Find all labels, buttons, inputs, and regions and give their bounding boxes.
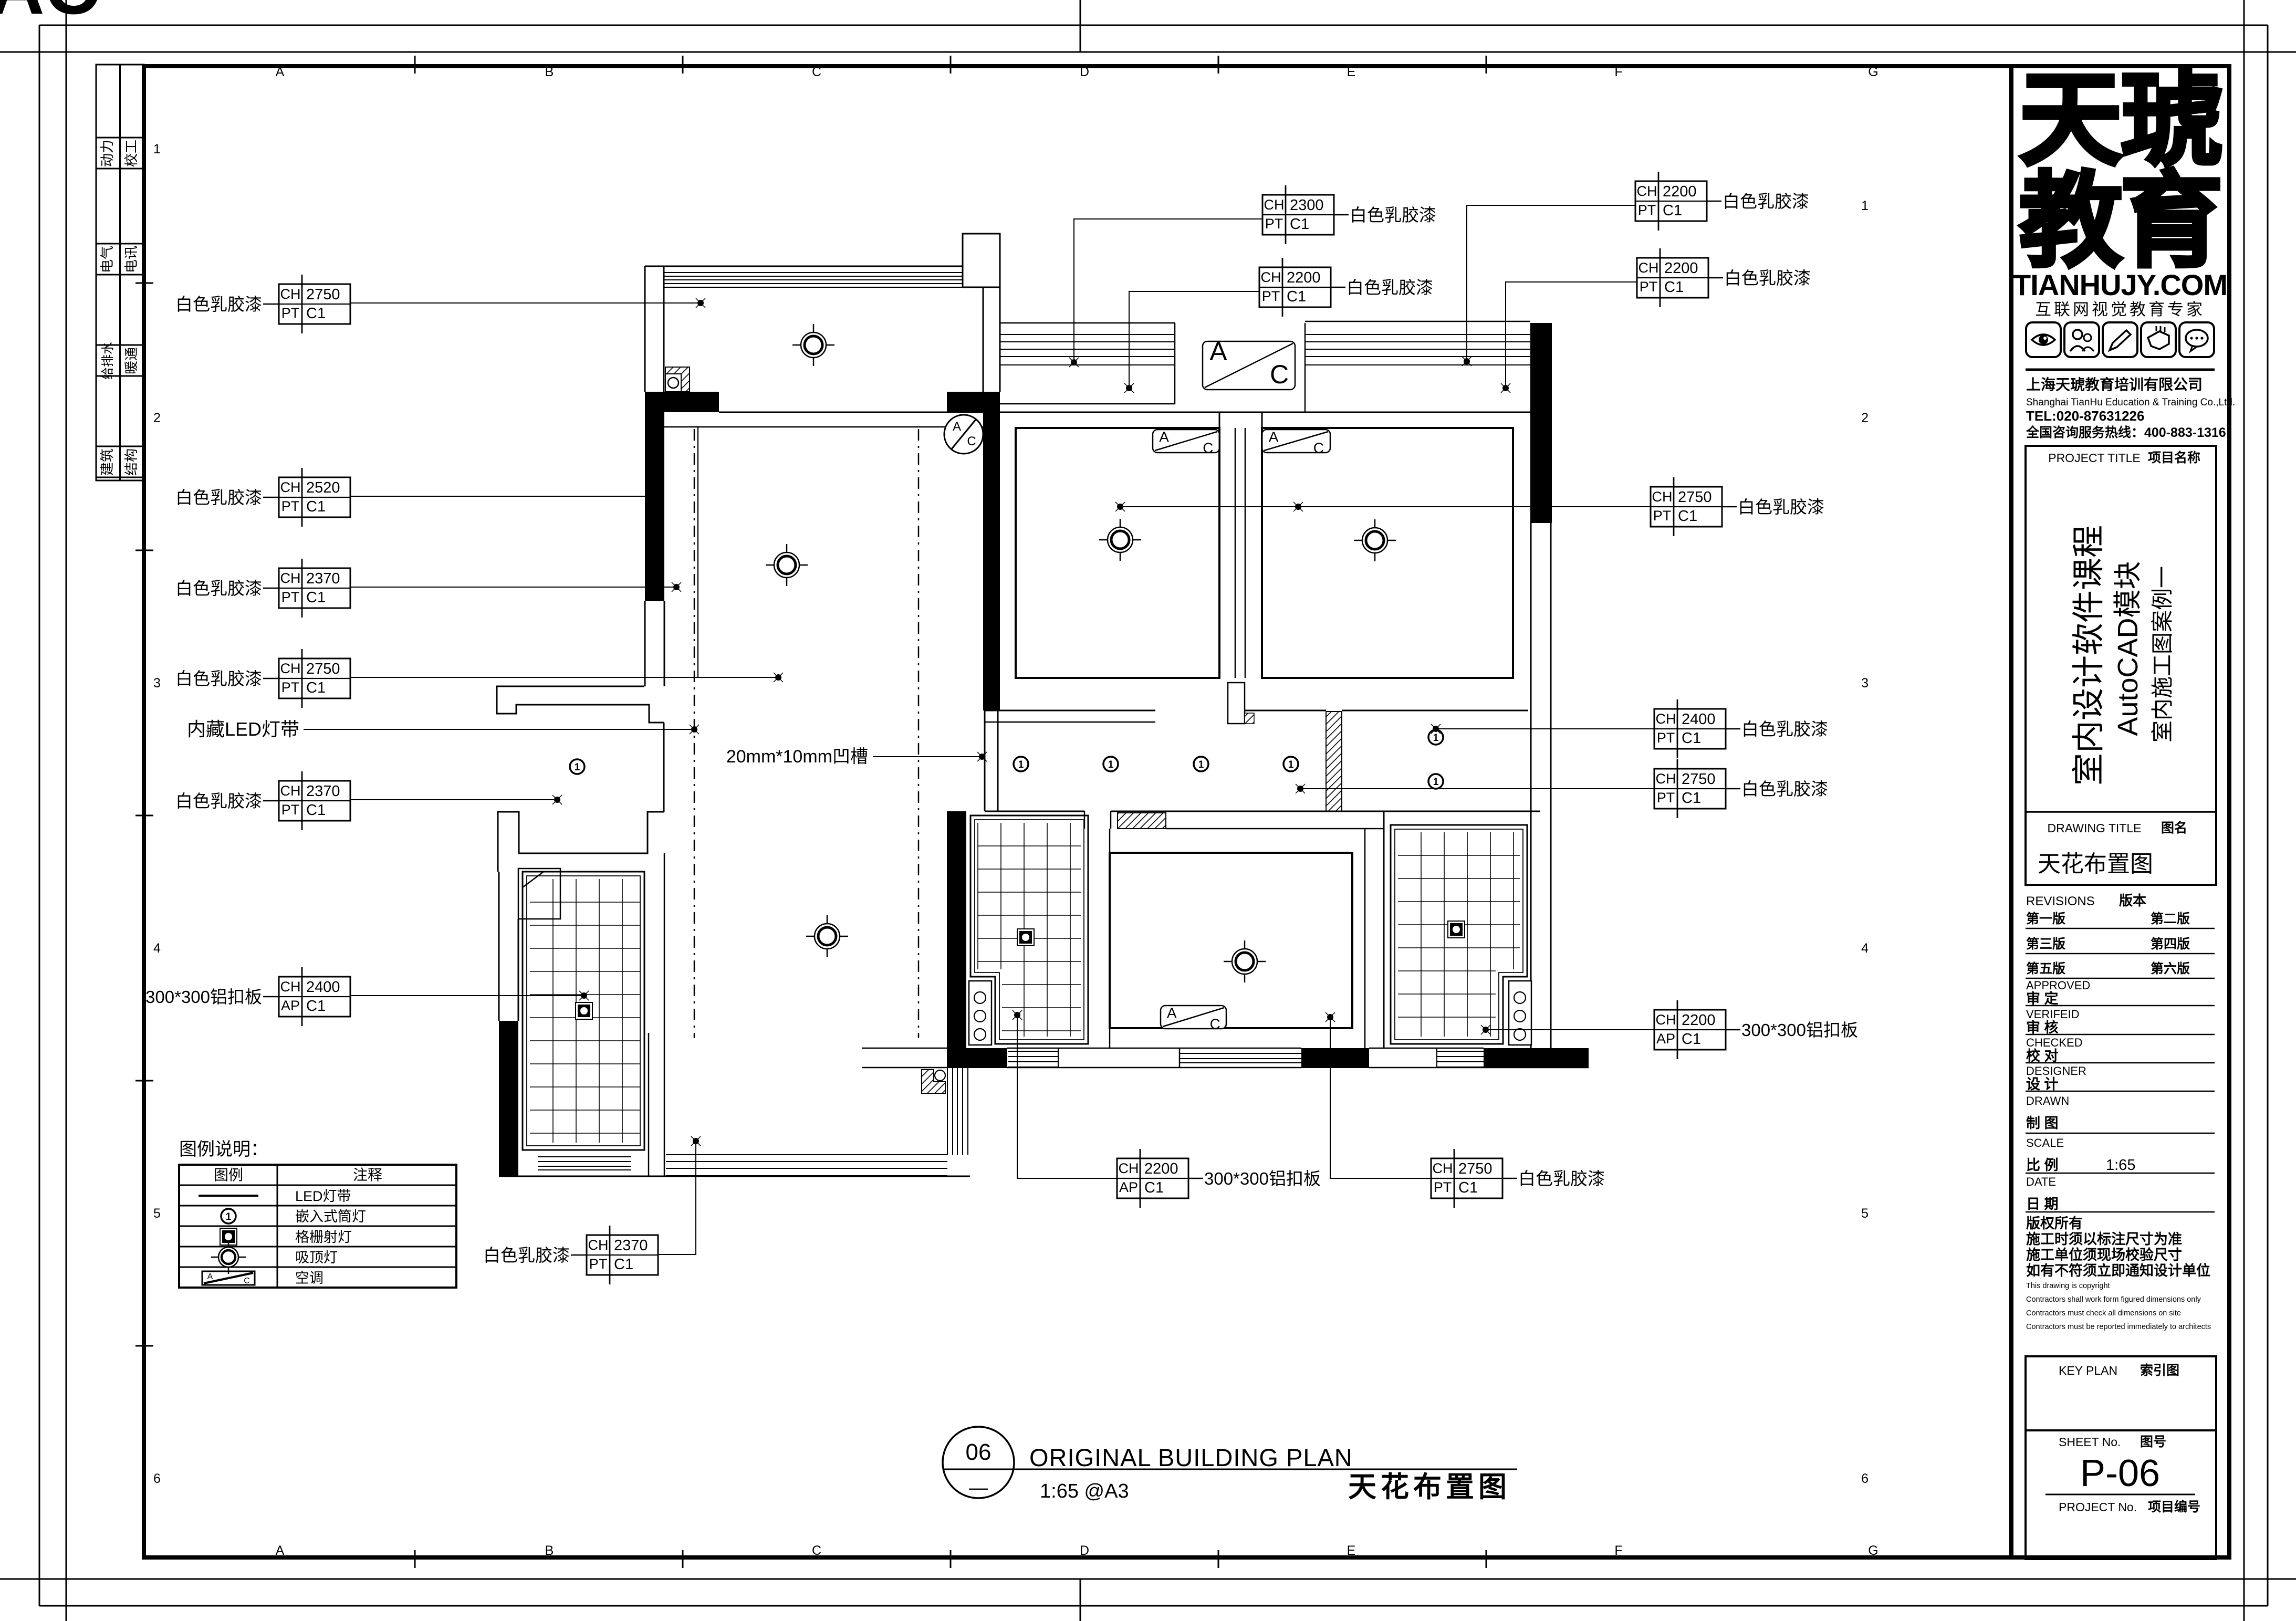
svg-text:5: 5 [153, 1206, 161, 1221]
svg-text:白色乳胶漆: 白色乳胶漆 [1347, 278, 1433, 297]
svg-text:PT: PT [1265, 216, 1283, 232]
svg-text:1: 1 [226, 1211, 232, 1222]
svg-text:AP: AP [1119, 1179, 1138, 1195]
svg-text:B: B [545, 1543, 554, 1558]
svg-text:项目名称: 项目名称 [2148, 450, 2200, 465]
svg-text:白色乳胶漆: 白色乳胶漆 [175, 579, 262, 598]
svg-text:1: 1 [1433, 733, 1439, 744]
svg-text:C1: C1 [1682, 790, 1701, 807]
svg-text:1: 1 [153, 142, 161, 156]
svg-text:APPROVED: APPROVED [2026, 979, 2090, 992]
svg-text:B: B [545, 65, 554, 79]
svg-text:E: E [1347, 65, 1356, 79]
svg-text:白色乳胶漆: 白色乳胶漆 [1723, 192, 1809, 211]
svg-text:白色乳胶漆: 白色乳胶漆 [175, 295, 262, 314]
svg-text:给排水: 给排水 [101, 342, 115, 380]
svg-text:2: 2 [1861, 411, 1869, 425]
svg-text:1: 1 [1433, 777, 1439, 788]
svg-text:PT: PT [1653, 508, 1672, 524]
svg-text:上海天琥教育培训有限公司: 上海天琥教育培训有限公司 [2026, 376, 2203, 393]
svg-text:室内设计软件课程: 室内设计软件课程 [2071, 525, 2107, 786]
svg-text:PT: PT [281, 498, 300, 514]
svg-text:C1: C1 [1458, 1179, 1478, 1196]
svg-text:PT: PT [589, 1256, 608, 1272]
svg-text:C1: C1 [614, 1256, 633, 1273]
svg-text:C: C [1203, 440, 1213, 456]
svg-text:20mm*10mm凹槽: 20mm*10mm凹槽 [726, 747, 868, 767]
svg-text:第二版: 第二版 [2151, 911, 2190, 926]
svg-text:审 核: 审 核 [2026, 1019, 2059, 1036]
svg-text:2750: 2750 [1458, 1160, 1493, 1177]
svg-text:F: F [1614, 65, 1622, 79]
svg-text:图例说明：: 图例说明： [179, 1139, 268, 1159]
svg-text:1: 1 [1861, 198, 1869, 213]
svg-text:PROJECT No.: PROJECT No. [2059, 1500, 2137, 1514]
svg-text:2300: 2300 [1290, 197, 1324, 214]
svg-text:This drawing is copyright: This drawing is copyright [2026, 1282, 2110, 1290]
svg-text:2750: 2750 [306, 661, 340, 677]
svg-text:2200: 2200 [1287, 269, 1321, 286]
svg-text:CH: CH [1656, 1012, 1676, 1028]
svg-text:AutoCAD模块: AutoCAD模块 [2112, 561, 2144, 736]
svg-text:2: 2 [153, 411, 161, 425]
svg-text:C1: C1 [1287, 288, 1306, 305]
svg-text:2750: 2750 [1682, 771, 1716, 788]
svg-text:校工: 校工 [123, 140, 139, 167]
svg-text:图例: 图例 [214, 1167, 243, 1183]
svg-text:审 定: 审 定 [2026, 990, 2059, 1007]
svg-text:TEL:020-87631226: TEL:020-87631226 [2026, 408, 2144, 424]
svg-text:教育: 教育 [2019, 164, 2221, 279]
svg-text:C1: C1 [306, 498, 326, 515]
svg-text:A: A [1269, 428, 1279, 445]
svg-text:第四版: 第四版 [2151, 936, 2190, 951]
svg-text:白色乳胶漆: 白色乳胶漆 [175, 488, 262, 507]
svg-text:白色乳胶漆: 白色乳胶漆 [1350, 205, 1436, 225]
svg-text:P-06: P-06 [2080, 1452, 2160, 1494]
svg-text:2200: 2200 [1144, 1160, 1178, 1177]
svg-text:暖通: 暖通 [123, 347, 139, 374]
svg-text:PROJECT TITLE: PROJECT TITLE [2048, 451, 2141, 465]
svg-text:1:65: 1:65 [2106, 1157, 2135, 1174]
svg-text:日 期: 日 期 [2026, 1196, 2059, 1212]
svg-text:300*300铝扣板: 300*300铝扣板 [145, 987, 262, 1007]
svg-text:白色乳胶漆: 白色乳胶漆 [1518, 1169, 1605, 1188]
svg-text:SCALE: SCALE [2026, 1136, 2064, 1149]
svg-text:A: A [1167, 1005, 1177, 1021]
svg-text:PT: PT [281, 589, 300, 605]
svg-text:C1: C1 [1663, 202, 1682, 219]
svg-text:第三版: 第三版 [2026, 936, 2065, 951]
svg-text:电讯: 电讯 [123, 246, 139, 273]
svg-text:天花布置图: 天花布置图 [1348, 1471, 1511, 1503]
svg-text:CH: CH [1656, 711, 1676, 727]
svg-text:白色乳胶漆: 白色乳胶漆 [1724, 268, 1811, 288]
svg-text:CH: CH [1119, 1160, 1139, 1176]
svg-text:G: G [1868, 65, 1878, 79]
svg-text:CH: CH [1637, 183, 1657, 199]
svg-text:DRAWING TITLE: DRAWING TITLE [2048, 821, 2142, 835]
svg-text:白色乳胶漆: 白色乳胶漆 [483, 1246, 570, 1265]
svg-text:CH: CH [280, 661, 301, 676]
svg-text:2370: 2370 [614, 1237, 648, 1254]
svg-text:C: C [812, 65, 821, 79]
svg-text:内藏LED灯带: 内藏LED灯带 [187, 718, 299, 740]
svg-text:白色乳胶漆: 白色乳胶漆 [1738, 497, 1824, 517]
svg-text:2370: 2370 [306, 783, 340, 800]
svg-text:白色乳胶漆: 白色乳胶漆 [175, 791, 262, 811]
svg-text:TIANHUJY.COM: TIANHUJY.COM [2013, 268, 2227, 301]
svg-text:1: 1 [575, 762, 580, 773]
svg-text:A: A [207, 1272, 213, 1281]
svg-text:Contractors must be reported i: Contractors must be reported immediately… [2026, 1323, 2211, 1331]
svg-text:C1: C1 [1682, 1031, 1701, 1048]
svg-text:第六版: 第六版 [2151, 961, 2190, 976]
svg-text:PT: PT [281, 802, 300, 818]
svg-text:PT: PT [1434, 1179, 1452, 1195]
svg-text:Shanghai TianHu Education & Tr: Shanghai TianHu Education & Training Co.… [2026, 397, 2235, 408]
svg-text:天琥: 天琥 [2019, 62, 2221, 177]
svg-text:C: C [1210, 1016, 1220, 1032]
svg-text:F: F [1614, 1543, 1622, 1558]
svg-text:A: A [276, 65, 285, 79]
svg-text:E: E [1347, 1543, 1356, 1558]
svg-text:2400: 2400 [306, 979, 340, 996]
svg-text:施工单位须现场校验尺寸: 施工单位须现场校验尺寸 [2026, 1247, 2182, 1263]
svg-text:CH: CH [280, 783, 301, 799]
svg-text:如有不符须立即通知设计单位: 如有不符须立即通知设计单位 [2026, 1262, 2210, 1279]
svg-text:SHEET No.: SHEET No. [2059, 1435, 2121, 1449]
svg-text:比 例: 比 例 [2026, 1157, 2059, 1173]
svg-text:PT: PT [281, 679, 300, 695]
svg-text:C: C [812, 1543, 821, 1558]
svg-text:KEY PLAN: KEY PLAN [2059, 1364, 2117, 1377]
svg-text:—: — [969, 1477, 988, 1498]
svg-text:设 计: 设 计 [2026, 1076, 2059, 1092]
svg-text:第五版: 第五版 [2026, 961, 2065, 976]
svg-text:4: 4 [1861, 941, 1869, 956]
svg-text:CH: CH [280, 479, 301, 495]
svg-text:C1: C1 [1664, 279, 1684, 296]
svg-text:白色乳胶漆: 白色乳胶漆 [1741, 779, 1828, 799]
svg-text:Contractors must check all dim: Contractors must check all dimensions on… [2026, 1309, 2181, 1317]
svg-text:C1: C1 [1144, 1179, 1164, 1196]
svg-text:1: 1 [1018, 759, 1024, 770]
svg-text:Contractors shall work form fi: Contractors shall work form figured dime… [2026, 1295, 2201, 1304]
svg-text:版本: 版本 [2118, 893, 2146, 908]
svg-text:C1: C1 [1290, 216, 1309, 233]
svg-text:AC: AC [0, 0, 99, 30]
svg-text:DESIGNER: DESIGNER [2026, 1064, 2086, 1078]
svg-text:2520: 2520 [306, 479, 340, 496]
svg-text:项目编号: 项目编号 [2148, 1499, 2200, 1514]
svg-text:C1: C1 [1678, 508, 1697, 525]
svg-text:CH: CH [1638, 260, 1659, 276]
svg-text:PT: PT [1657, 790, 1675, 806]
svg-text:300*300铝扣板: 300*300铝扣板 [1741, 1020, 1858, 1040]
svg-text:天花布置图: 天花布置图 [2038, 851, 2153, 877]
svg-text:PT: PT [1262, 288, 1280, 304]
svg-text:图名: 图名 [2161, 820, 2187, 835]
svg-text:6: 6 [153, 1471, 161, 1486]
svg-text:DATE: DATE [2026, 1175, 2056, 1188]
svg-text:2750: 2750 [1678, 489, 1712, 506]
svg-text:1: 1 [1108, 759, 1114, 770]
svg-text:A: A [1159, 428, 1169, 445]
svg-text:施工时须以标注尺寸为准: 施工时须以标注尺寸为准 [2026, 1231, 2182, 1247]
svg-text:AP: AP [281, 998, 300, 1013]
svg-text:索引图: 索引图 [2140, 1363, 2179, 1378]
svg-text:G: G [1868, 1543, 1878, 1558]
svg-text:DRAWN: DRAWN [2026, 1094, 2069, 1107]
svg-text:3: 3 [1861, 676, 1869, 691]
svg-text:C: C [244, 1277, 250, 1285]
svg-text:A: A [953, 420, 961, 434]
svg-text:第一版: 第一版 [2026, 911, 2065, 926]
svg-text:2200: 2200 [1682, 1012, 1716, 1029]
svg-text:1: 1 [1198, 759, 1204, 770]
svg-text:动力: 动力 [99, 140, 115, 167]
svg-text:LED灯带: LED灯带 [295, 1188, 351, 1204]
svg-text:2200: 2200 [1663, 183, 1697, 200]
svg-text:PT: PT [281, 305, 300, 321]
svg-text:PT: PT [1638, 202, 1656, 218]
svg-text:2370: 2370 [306, 570, 340, 587]
svg-text:A: A [1209, 337, 1227, 366]
svg-text:REVISIONS: REVISIONS [2026, 894, 2095, 908]
svg-text:D: D [1080, 65, 1089, 79]
svg-text:3: 3 [153, 676, 161, 691]
svg-text:建筑: 建筑 [99, 448, 115, 476]
svg-text:室内施工图案例一: 室内施工图案例一 [2150, 566, 2175, 742]
svg-text:电气: 电气 [99, 246, 115, 273]
svg-text:CH: CH [588, 1237, 609, 1253]
svg-text:C: C [1313, 440, 1324, 456]
svg-text:2400: 2400 [1682, 711, 1716, 728]
svg-text:互联网视觉教育专家: 互联网视觉教育专家 [2035, 300, 2205, 319]
svg-text:C1: C1 [306, 802, 326, 819]
svg-text:C1: C1 [306, 589, 326, 606]
svg-text:4: 4 [153, 941, 161, 956]
svg-text:2750: 2750 [306, 286, 340, 303]
svg-text:格栅射灯: 格栅射灯 [295, 1229, 352, 1245]
svg-text:D: D [1080, 1543, 1089, 1558]
svg-text:06: 06 [966, 1439, 992, 1465]
svg-text:结构: 结构 [123, 448, 139, 476]
svg-text:5: 5 [1861, 1206, 1869, 1221]
svg-text:制 图: 制 图 [2026, 1115, 2059, 1131]
svg-text:白色乳胶漆: 白色乳胶漆 [175, 669, 262, 688]
svg-text:嵌入式筒灯: 嵌入式筒灯 [295, 1209, 366, 1225]
svg-text:C: C [1270, 360, 1289, 389]
svg-text:ORIGINAL BUILDING PLAN: ORIGINAL BUILDING PLAN [1029, 1444, 1353, 1471]
svg-text:C1: C1 [1682, 730, 1701, 747]
svg-text:1:65 @A3: 1:65 @A3 [1040, 1480, 1129, 1502]
svg-text:图号: 图号 [2140, 1435, 2166, 1449]
svg-text:6: 6 [1861, 1471, 1869, 1486]
svg-text:C1: C1 [306, 679, 326, 696]
svg-text:300*300铝扣板: 300*300铝扣板 [1204, 1169, 1321, 1188]
svg-text:2200: 2200 [1664, 260, 1698, 277]
svg-text:CH: CH [280, 570, 301, 586]
svg-text:CH: CH [1656, 771, 1676, 787]
svg-text:CH: CH [280, 979, 301, 995]
svg-text:VERIFEID: VERIFEID [2026, 1008, 2079, 1021]
svg-text:校 对: 校 对 [2026, 1048, 2059, 1064]
svg-text:PT: PT [1657, 730, 1675, 746]
svg-text:吸顶灯: 吸顶灯 [295, 1250, 338, 1266]
svg-text:PT: PT [1640, 279, 1658, 295]
svg-text:CH: CH [1433, 1160, 1453, 1176]
svg-text:CH: CH [1264, 197, 1285, 213]
svg-text:1: 1 [1288, 759, 1294, 770]
svg-text:空调: 空调 [295, 1270, 323, 1286]
svg-text:C1: C1 [306, 305, 326, 322]
svg-text:版权所有: 版权所有 [2026, 1216, 2083, 1231]
svg-text:白色乳胶漆: 白色乳胶漆 [1741, 719, 1828, 739]
svg-text:CHECKED: CHECKED [2026, 1036, 2083, 1049]
svg-text:CH: CH [280, 286, 301, 302]
svg-text:CH: CH [1652, 489, 1673, 505]
svg-text:A: A [276, 1543, 285, 1558]
svg-text:CH: CH [1261, 269, 1281, 285]
svg-text:AP: AP [1656, 1031, 1675, 1047]
svg-text:C1: C1 [306, 998, 326, 1015]
svg-text:注释: 注释 [353, 1167, 382, 1183]
svg-text:全国咨询服务热线：400-883-1316: 全国咨询服务热线：400-883-1316 [2026, 425, 2226, 440]
svg-text:C: C [967, 434, 976, 448]
